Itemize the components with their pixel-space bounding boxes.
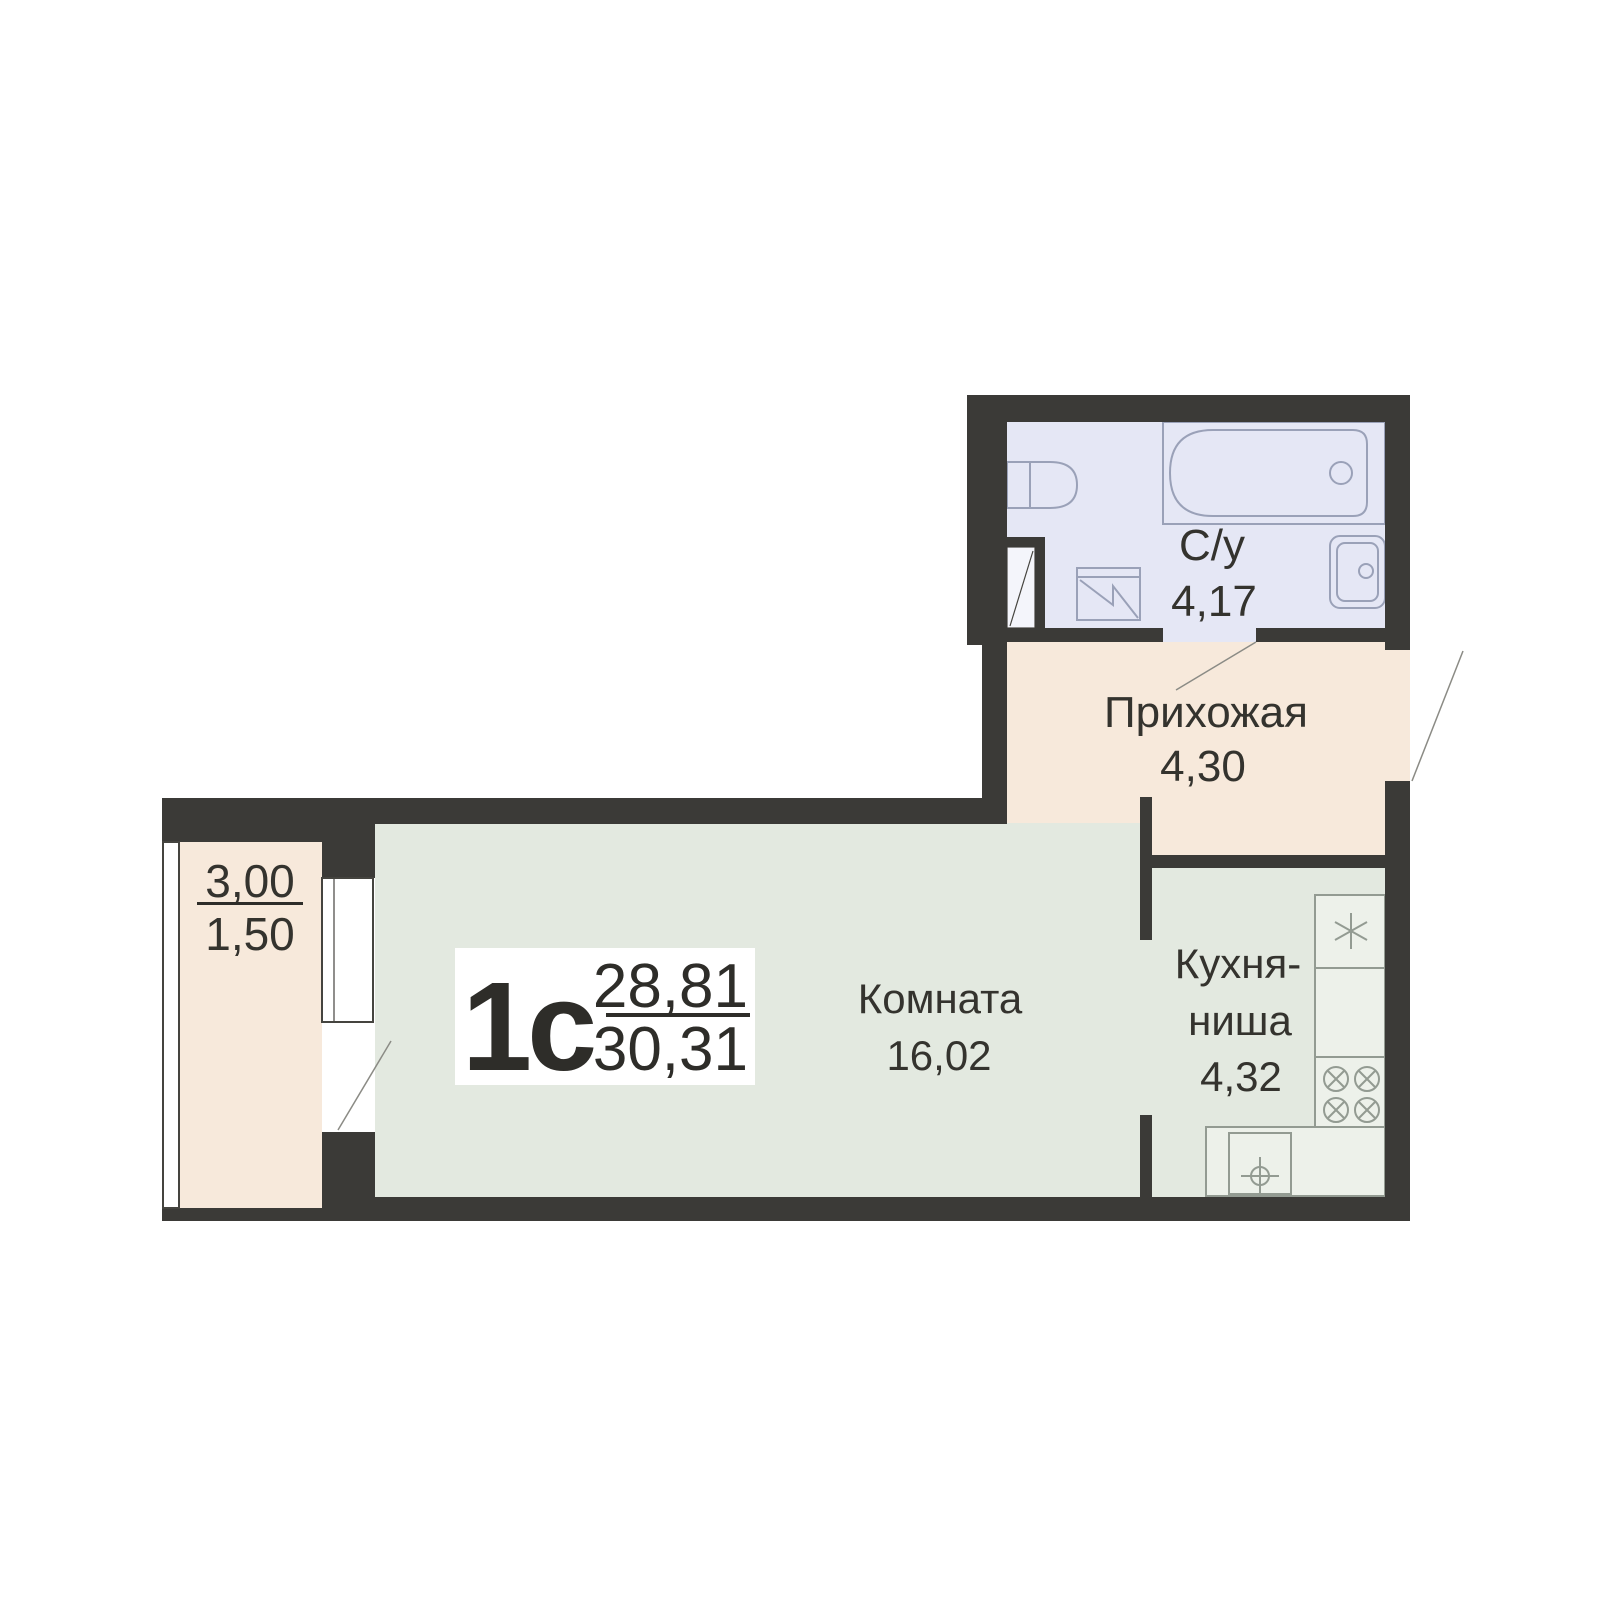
wall-bottom — [322, 1197, 1410, 1221]
wall-bathroom-bottom-left — [1007, 628, 1163, 642]
unit-area-total: 30,31 — [593, 1015, 748, 1084]
floor-hallway-passage — [1007, 797, 1140, 827]
wall-top — [967, 395, 1410, 422]
bathroom-label: С/у — [1179, 521, 1245, 570]
wall-room-top — [375, 798, 1007, 824]
vent-shaft-icon — [1007, 547, 1035, 628]
wall-hallway-bottom — [1151, 855, 1410, 868]
wall-kitchen-partition-lower — [1140, 1115, 1152, 1197]
balcony-glazing — [163, 842, 179, 1208]
unit-area-living: 28,81 — [593, 952, 748, 1021]
kitchen-label-line2: ниша — [1188, 997, 1292, 1044]
bathroom-door-threshold — [1163, 628, 1256, 644]
kitchen-counter-bottom — [1206, 1127, 1385, 1196]
wall-right-upper — [1385, 395, 1410, 650]
wall-shaft-top — [1007, 537, 1045, 547]
kitchen-label-line1: Кухня- — [1175, 940, 1301, 987]
room-area: 16,02 — [886, 1032, 991, 1079]
room-label: Комната — [858, 975, 1023, 1022]
wall-bathroom-bottom-right — [1256, 628, 1410, 642]
bathroom-area: 4,17 — [1171, 577, 1257, 626]
entrance-door-threshold — [1385, 650, 1410, 781]
wall-right-lower — [1385, 781, 1410, 1221]
balcony-area-reduced: 1,50 — [205, 908, 295, 960]
hallway-area: 4,30 — [1160, 742, 1246, 791]
floor-plan-canvas: 1с 28,81 30,31 С/у 4,17 Прихожая 4,30 Ко… — [0, 0, 1620, 1620]
floor-plan: 1с 28,81 30,31 С/у 4,17 Прихожая 4,30 Ко… — [0, 0, 1620, 1620]
wall-kitchen-partition-upper — [1140, 797, 1152, 940]
balcony-fraction-bar — [197, 902, 303, 905]
unit-type-label: 1с — [462, 956, 594, 1097]
wall-balcony-bottom — [162, 1208, 322, 1221]
wall-shaft-side — [1035, 547, 1045, 642]
wall-balcony-pillar — [322, 1132, 375, 1197]
wall-window-column — [322, 824, 375, 878]
entrance-door-swing — [1412, 651, 1463, 781]
wall-left-lower — [982, 645, 1007, 798]
kitchen-area: 4,32 — [1200, 1053, 1282, 1100]
wall-left-upper — [967, 395, 1007, 645]
balcony-area-full: 3,00 — [205, 855, 295, 907]
room-balcony-window — [322, 878, 373, 1022]
hallway-label: Прихожая — [1104, 688, 1308, 737]
